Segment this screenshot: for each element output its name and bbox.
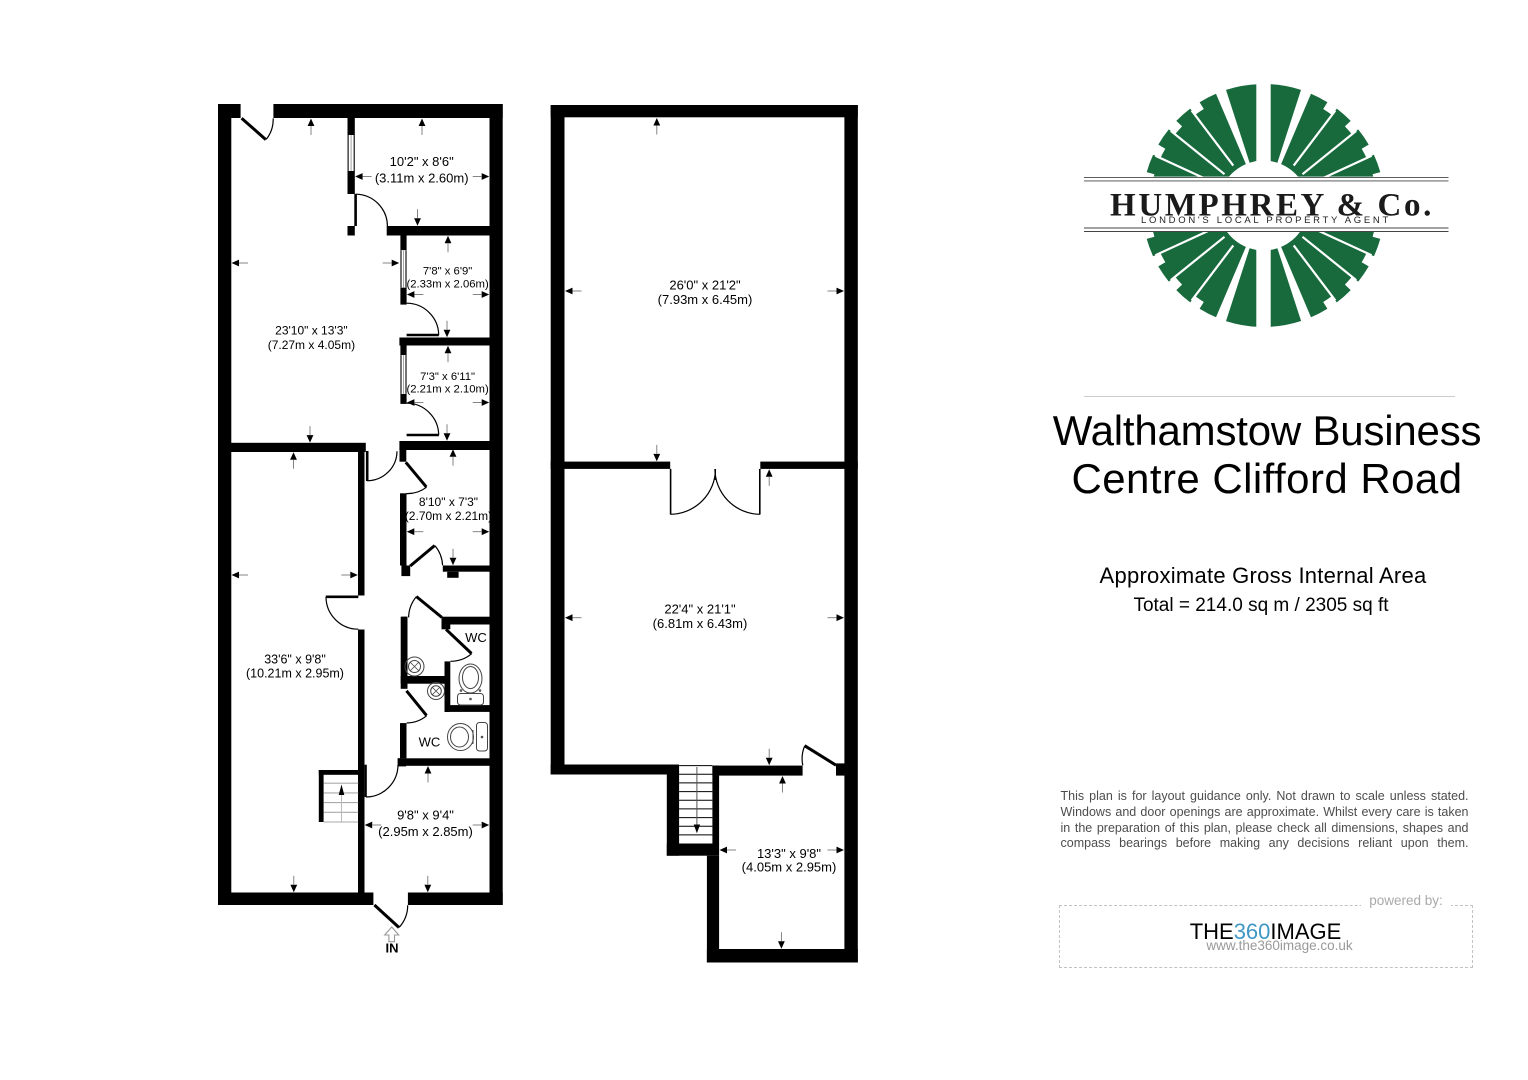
svg-text:LONDON'S LOCAL PROPERTY AGENT: LONDON'S LOCAL PROPERTY AGENT xyxy=(1141,215,1391,226)
